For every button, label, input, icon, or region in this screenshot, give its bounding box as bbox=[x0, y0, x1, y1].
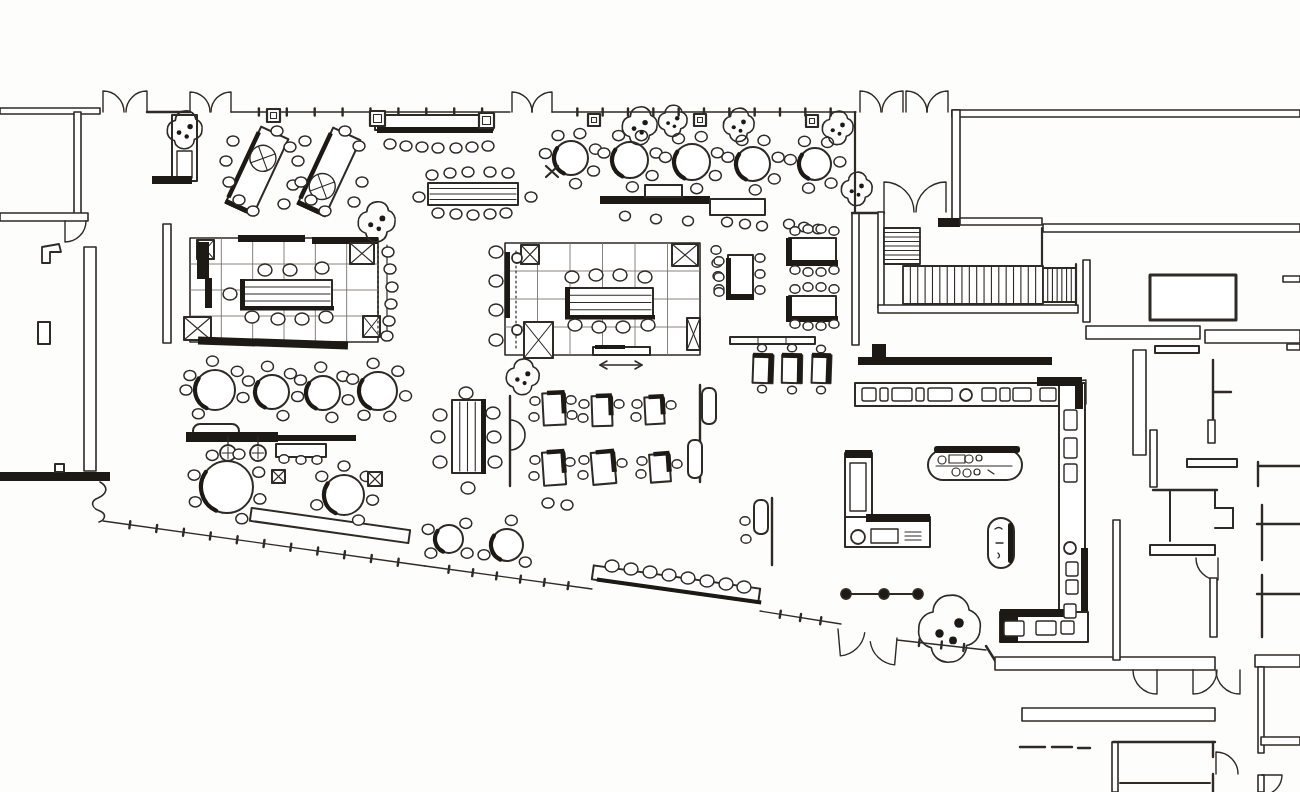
wall bbox=[163, 224, 171, 343]
table-small bbox=[591, 393, 614, 426]
wall-solid bbox=[0, 472, 110, 481]
counter bbox=[186, 432, 278, 442]
door-swing bbox=[1133, 670, 1157, 694]
door-swing bbox=[126, 91, 147, 112]
stairs-landing bbox=[1043, 268, 1076, 302]
round-table bbox=[180, 356, 249, 419]
bench bbox=[238, 235, 305, 242]
stools bbox=[711, 246, 724, 294]
table-edge bbox=[1008, 523, 1013, 563]
door-swing bbox=[1196, 558, 1218, 580]
table bbox=[789, 296, 836, 318]
column bbox=[687, 318, 700, 350]
door-swing bbox=[65, 221, 86, 242]
wall bbox=[1205, 330, 1300, 343]
wall bbox=[1083, 260, 1090, 322]
bench bbox=[688, 440, 702, 478]
mark bbox=[546, 166, 558, 177]
wall bbox=[1187, 459, 1237, 467]
wall bbox=[1043, 224, 1300, 232]
wall bbox=[74, 112, 81, 214]
counter-box bbox=[645, 185, 682, 197]
column-post bbox=[806, 115, 818, 127]
wall bbox=[1112, 742, 1118, 792]
wall-solid bbox=[205, 278, 212, 308]
door-swing bbox=[870, 638, 897, 665]
room bbox=[1150, 275, 1236, 320]
bench-edge bbox=[595, 345, 625, 349]
table-edge bbox=[786, 260, 838, 266]
dish bbox=[963, 469, 971, 477]
column-post bbox=[370, 111, 385, 126]
table-small bbox=[644, 394, 666, 425]
stairs-main bbox=[903, 266, 1043, 304]
wall bbox=[84, 247, 96, 471]
wall bbox=[1208, 420, 1215, 443]
door-swing bbox=[916, 182, 946, 212]
door-swing bbox=[532, 92, 552, 112]
counter-edge bbox=[866, 514, 930, 522]
door-swing bbox=[103, 91, 124, 112]
station-edge bbox=[768, 355, 774, 383]
counter-inner bbox=[850, 463, 866, 511]
dish bbox=[952, 468, 960, 476]
stools bbox=[381, 247, 398, 341]
chairs bbox=[279, 455, 322, 465]
door-swing bbox=[838, 629, 865, 656]
plant bbox=[358, 202, 395, 242]
wall bbox=[1133, 350, 1146, 455]
wall bbox=[960, 218, 1042, 225]
round-table bbox=[539, 128, 601, 188]
counter-slot-round bbox=[960, 389, 972, 401]
counter-inner bbox=[871, 529, 898, 543]
dish bbox=[938, 456, 946, 464]
door-squiggle bbox=[93, 482, 106, 522]
round-table bbox=[422, 518, 473, 558]
column bbox=[672, 244, 698, 266]
rail-post bbox=[879, 589, 889, 599]
column bbox=[521, 245, 539, 264]
wall bbox=[0, 213, 88, 221]
buffet-island bbox=[928, 450, 1022, 480]
table-striped bbox=[452, 399, 486, 474]
wall bbox=[1086, 326, 1200, 339]
counter-edge bbox=[845, 450, 872, 458]
window-bench bbox=[250, 508, 410, 543]
wall-stub bbox=[42, 244, 61, 263]
door-swing bbox=[884, 182, 914, 212]
station-edge bbox=[826, 355, 832, 383]
wall-solid bbox=[938, 218, 960, 227]
wall-solid bbox=[152, 176, 192, 184]
round-table bbox=[242, 361, 303, 420]
counter-edge bbox=[1075, 383, 1083, 409]
wall bbox=[1113, 520, 1120, 660]
wall bbox=[1150, 430, 1157, 487]
station-edge bbox=[797, 355, 802, 383]
door-swing bbox=[1262, 775, 1282, 792]
bench-edge bbox=[377, 127, 493, 133]
wall bbox=[952, 110, 1300, 117]
door-swing bbox=[211, 92, 231, 112]
door-swing bbox=[882, 91, 903, 112]
wall bbox=[1258, 775, 1264, 792]
fixture bbox=[512, 253, 522, 263]
table-small bbox=[649, 451, 673, 483]
wall bbox=[878, 305, 1078, 313]
table bbox=[728, 255, 753, 298]
rail-post bbox=[913, 589, 923, 599]
buffet-counter bbox=[565, 287, 655, 320]
pier bbox=[55, 464, 64, 472]
glazed-wall bbox=[760, 611, 841, 624]
bench bbox=[730, 337, 815, 344]
wall bbox=[1150, 545, 1215, 555]
stool-square bbox=[368, 472, 382, 486]
sketch-page bbox=[0, 0, 1300, 792]
counter-edge bbox=[934, 446, 1020, 453]
glazed-wall bbox=[425, 566, 592, 589]
door-swing bbox=[1193, 670, 1217, 694]
table-small bbox=[542, 390, 567, 426]
column-post bbox=[694, 114, 706, 126]
stairs-upper bbox=[884, 228, 920, 264]
door-swing bbox=[1216, 752, 1238, 774]
buffet-counter bbox=[240, 279, 334, 311]
table-small bbox=[590, 448, 617, 485]
wall bbox=[1261, 737, 1300, 745]
table-edge bbox=[726, 258, 731, 296]
door-swing bbox=[927, 91, 948, 112]
round-table bbox=[478, 515, 531, 567]
dish bbox=[976, 455, 982, 461]
column-post bbox=[588, 114, 600, 126]
wall bbox=[1210, 578, 1217, 637]
bench bbox=[754, 500, 768, 534]
wall bbox=[852, 213, 859, 345]
counter-slots bbox=[862, 388, 1078, 636]
round-table bbox=[294, 362, 354, 423]
plant bbox=[919, 595, 981, 662]
round-table bbox=[311, 461, 379, 525]
door-swing bbox=[1216, 670, 1240, 694]
wall bbox=[995, 657, 1215, 670]
counter-ext bbox=[710, 199, 765, 215]
table-small bbox=[542, 449, 568, 486]
wall bbox=[0, 108, 100, 114]
floorplan-drawing bbox=[0, 0, 1300, 792]
dish bbox=[965, 455, 973, 463]
counter bbox=[278, 435, 356, 441]
door-swing bbox=[190, 92, 210, 112]
wall bbox=[952, 110, 960, 222]
counter-slot-round bbox=[1064, 542, 1076, 554]
wall bbox=[1255, 655, 1300, 667]
wall bbox=[1155, 346, 1199, 353]
plant bbox=[841, 172, 872, 205]
wall bbox=[1022, 708, 1215, 721]
fixture bbox=[512, 325, 522, 335]
column-post bbox=[267, 109, 280, 122]
door-swing bbox=[512, 92, 532, 112]
wall-solid bbox=[197, 242, 209, 279]
column bbox=[184, 317, 211, 340]
stool-square bbox=[272, 470, 285, 483]
rail-post bbox=[841, 589, 851, 599]
cabinet-fixture bbox=[177, 151, 192, 178]
chairs bbox=[542, 498, 573, 510]
screen-bump bbox=[510, 420, 525, 450]
glazed-wall bbox=[897, 639, 986, 651]
dish bbox=[974, 469, 980, 475]
plant bbox=[658, 105, 687, 136]
column bbox=[350, 243, 374, 264]
bench bbox=[702, 388, 716, 424]
direction-arrow bbox=[600, 361, 642, 369]
sink bbox=[851, 530, 865, 544]
wall bbox=[1287, 344, 1300, 350]
table-striped bbox=[428, 183, 518, 205]
chairs bbox=[384, 139, 494, 153]
round-table bbox=[722, 135, 784, 195]
door-swing bbox=[860, 91, 881, 112]
round-table bbox=[347, 358, 412, 421]
column bbox=[524, 322, 553, 358]
wall-solid bbox=[858, 357, 1052, 365]
table bbox=[789, 238, 836, 262]
stools bbox=[489, 246, 503, 346]
dish bbox=[949, 455, 965, 463]
wall-recess bbox=[38, 322, 50, 344]
wall-solid bbox=[505, 252, 510, 318]
column-post bbox=[479, 113, 494, 128]
door-swing bbox=[906, 91, 927, 112]
wall bbox=[1283, 276, 1300, 282]
chairs bbox=[740, 517, 751, 544]
plant bbox=[506, 359, 539, 395]
